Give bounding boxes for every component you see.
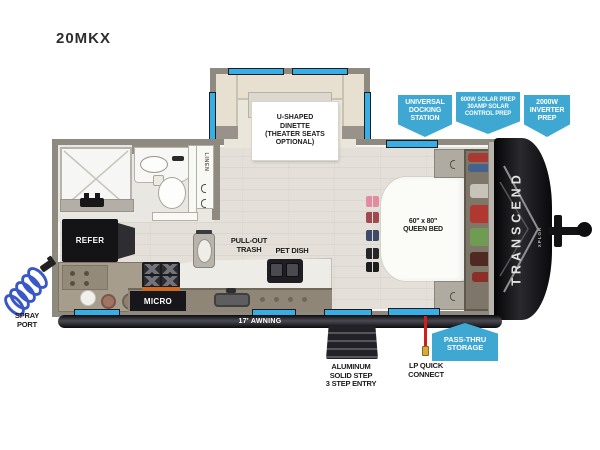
callout-inverter-prep: 2000W INVERTER PREP xyxy=(524,95,570,137)
entry-step-label: ALUMINUM SOLID STEP 3 STEP ENTRY xyxy=(298,363,404,389)
page-title: 20MKX xyxy=(56,30,111,47)
cabinet-knob xyxy=(274,297,279,302)
burner-grate xyxy=(162,264,178,274)
awning-label: 17' AWNING xyxy=(210,318,310,325)
hitch-coupler xyxy=(577,222,592,237)
dinette-armrest-left xyxy=(216,126,238,140)
brand-series-vertical: XPLOR xyxy=(537,217,543,257)
vanity-sink xyxy=(140,156,168,173)
callout-solar-prep: 600W SOLAR PREP 30AMP SOLAR CONTROL PREP xyxy=(456,92,520,134)
floorplan-diagram: 20MKX LINEN REFER xyxy=(0,0,600,450)
stove-knob-panel xyxy=(62,265,108,290)
lp-line xyxy=(424,316,427,348)
dinette-label-box: U-SHAPED DINETTE (THEATER SEATS OPTIONAL… xyxy=(252,102,338,160)
cabinet-knob xyxy=(302,297,307,302)
microwave: MICRO xyxy=(130,291,186,311)
callout-pass-thru-storage: PASS-THRU STORAGE xyxy=(432,323,498,361)
cabinet-knob xyxy=(288,297,293,302)
cabinet-handle xyxy=(450,292,455,301)
shoes-black xyxy=(366,248,379,259)
lp-quick-connect-label: LP QUICK CONNECT xyxy=(392,362,460,379)
trash-can-handle xyxy=(196,230,212,234)
pet-bowl-left xyxy=(270,263,283,277)
shower-head-knob-1 xyxy=(84,193,89,199)
pet-bowl-right xyxy=(286,263,299,277)
bathroom-lower-wall xyxy=(152,212,198,221)
shoes-pink xyxy=(366,196,379,207)
steps-icon xyxy=(326,326,378,359)
pet-dish-label: PET DISH xyxy=(263,247,321,256)
shower-head-knob-2 xyxy=(95,193,100,199)
knob-icon xyxy=(84,281,89,286)
linen-door-handle-2 xyxy=(201,199,206,208)
pet-dish-icon xyxy=(267,259,303,283)
faucet-icon xyxy=(172,156,184,161)
lp-connector-icon xyxy=(422,346,429,356)
dinette-window-top-right xyxy=(292,68,348,75)
bedroom-window-top xyxy=(386,140,438,148)
dinette-label: U-SHAPED DINETTE (THEATER SEATS OPTIONAL… xyxy=(265,114,325,148)
refrigerator-label: REFER xyxy=(76,236,105,245)
burner-grate xyxy=(144,276,160,286)
dinette-window-left xyxy=(209,92,216,140)
dinette-window-top-left xyxy=(228,68,284,75)
linen-door-handle-1 xyxy=(201,184,206,193)
cabinet-handle xyxy=(450,160,455,169)
queen-bed-label: 60" x 80" QUEEN BED xyxy=(382,218,464,234)
shoes-navy xyxy=(366,230,379,241)
linen-label: LINEN xyxy=(201,145,209,179)
knob-icon xyxy=(70,281,75,286)
round-sink xyxy=(80,290,96,306)
refrigerator: REFER xyxy=(62,219,118,262)
shower-head-icon xyxy=(80,198,104,207)
knob-icon xyxy=(84,271,89,276)
stove-icon xyxy=(142,262,180,288)
round-burner-small xyxy=(101,294,116,309)
burner-grate xyxy=(162,276,178,286)
dinette-armrest-right xyxy=(342,126,364,140)
kitchen-faucet-icon xyxy=(226,288,236,293)
trash-can-lid xyxy=(197,239,212,263)
refrigerator-door xyxy=(118,223,135,259)
microwave-label: MICRO xyxy=(144,297,172,306)
shoes-black-2 xyxy=(366,262,379,272)
cabinet-knob xyxy=(260,297,265,302)
spray-port-label: SPRAY PORT xyxy=(4,312,50,329)
brand-name-vertical: TRANSCEND xyxy=(510,139,525,319)
burner-grate xyxy=(144,264,160,274)
kitchen-sink xyxy=(214,293,250,307)
callout-universal-docking: UNIVERSAL DOCKING STATION xyxy=(398,95,452,137)
shoes-red xyxy=(366,212,379,223)
trash-can-icon xyxy=(193,233,215,268)
dinette-window-right xyxy=(364,92,371,140)
toilet-bowl xyxy=(158,177,186,209)
knob-icon xyxy=(70,271,75,276)
